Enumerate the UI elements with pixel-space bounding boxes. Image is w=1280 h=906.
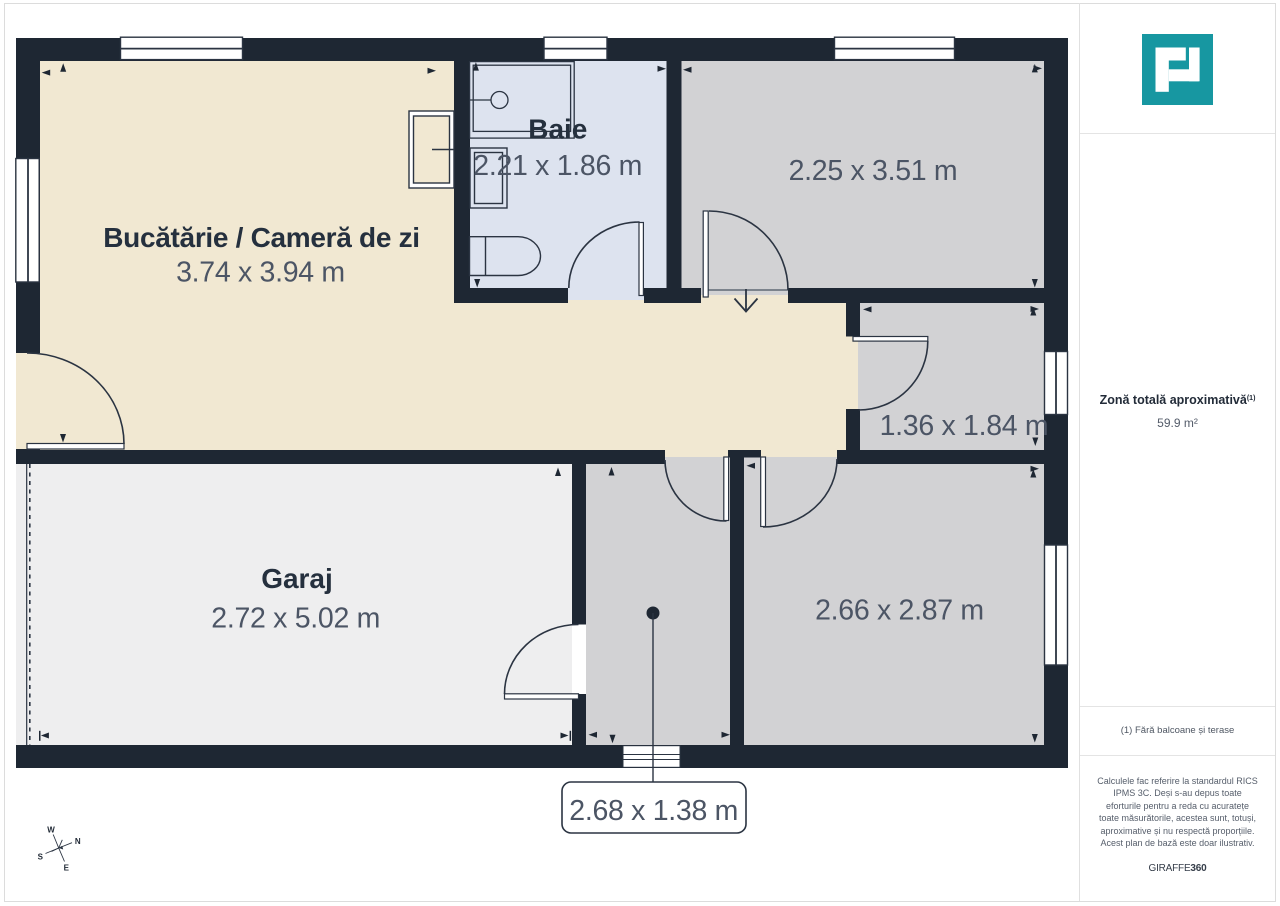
svg-text:3.74 x 3.94 m: 3.74 x 3.94 m: [176, 257, 345, 289]
svg-text:E: E: [64, 863, 70, 872]
svg-text:2.25 x 3.51 m: 2.25 x 3.51 m: [789, 155, 958, 187]
svg-text:S: S: [38, 852, 44, 861]
svg-text:2.68 x 1.38 m: 2.68 x 1.38 m: [569, 795, 738, 827]
svg-text:2.66 x 2.87 m: 2.66 x 2.87 m: [815, 595, 984, 627]
svg-text:1.36 x 1.84 m: 1.36 x 1.84 m: [880, 410, 1049, 442]
svg-text:Garaj: Garaj: [261, 563, 333, 594]
svg-text:Bucătărie / Cameră de zi: Bucătărie / Cameră de zi: [103, 222, 420, 253]
svg-text:N: N: [75, 837, 81, 846]
svg-text:2.21 x 1.86 m: 2.21 x 1.86 m: [473, 150, 642, 182]
svg-text:Baie: Baie: [528, 114, 587, 145]
svg-text:W: W: [47, 826, 55, 835]
svg-text:2.72 x 5.02 m: 2.72 x 5.02 m: [211, 603, 380, 635]
